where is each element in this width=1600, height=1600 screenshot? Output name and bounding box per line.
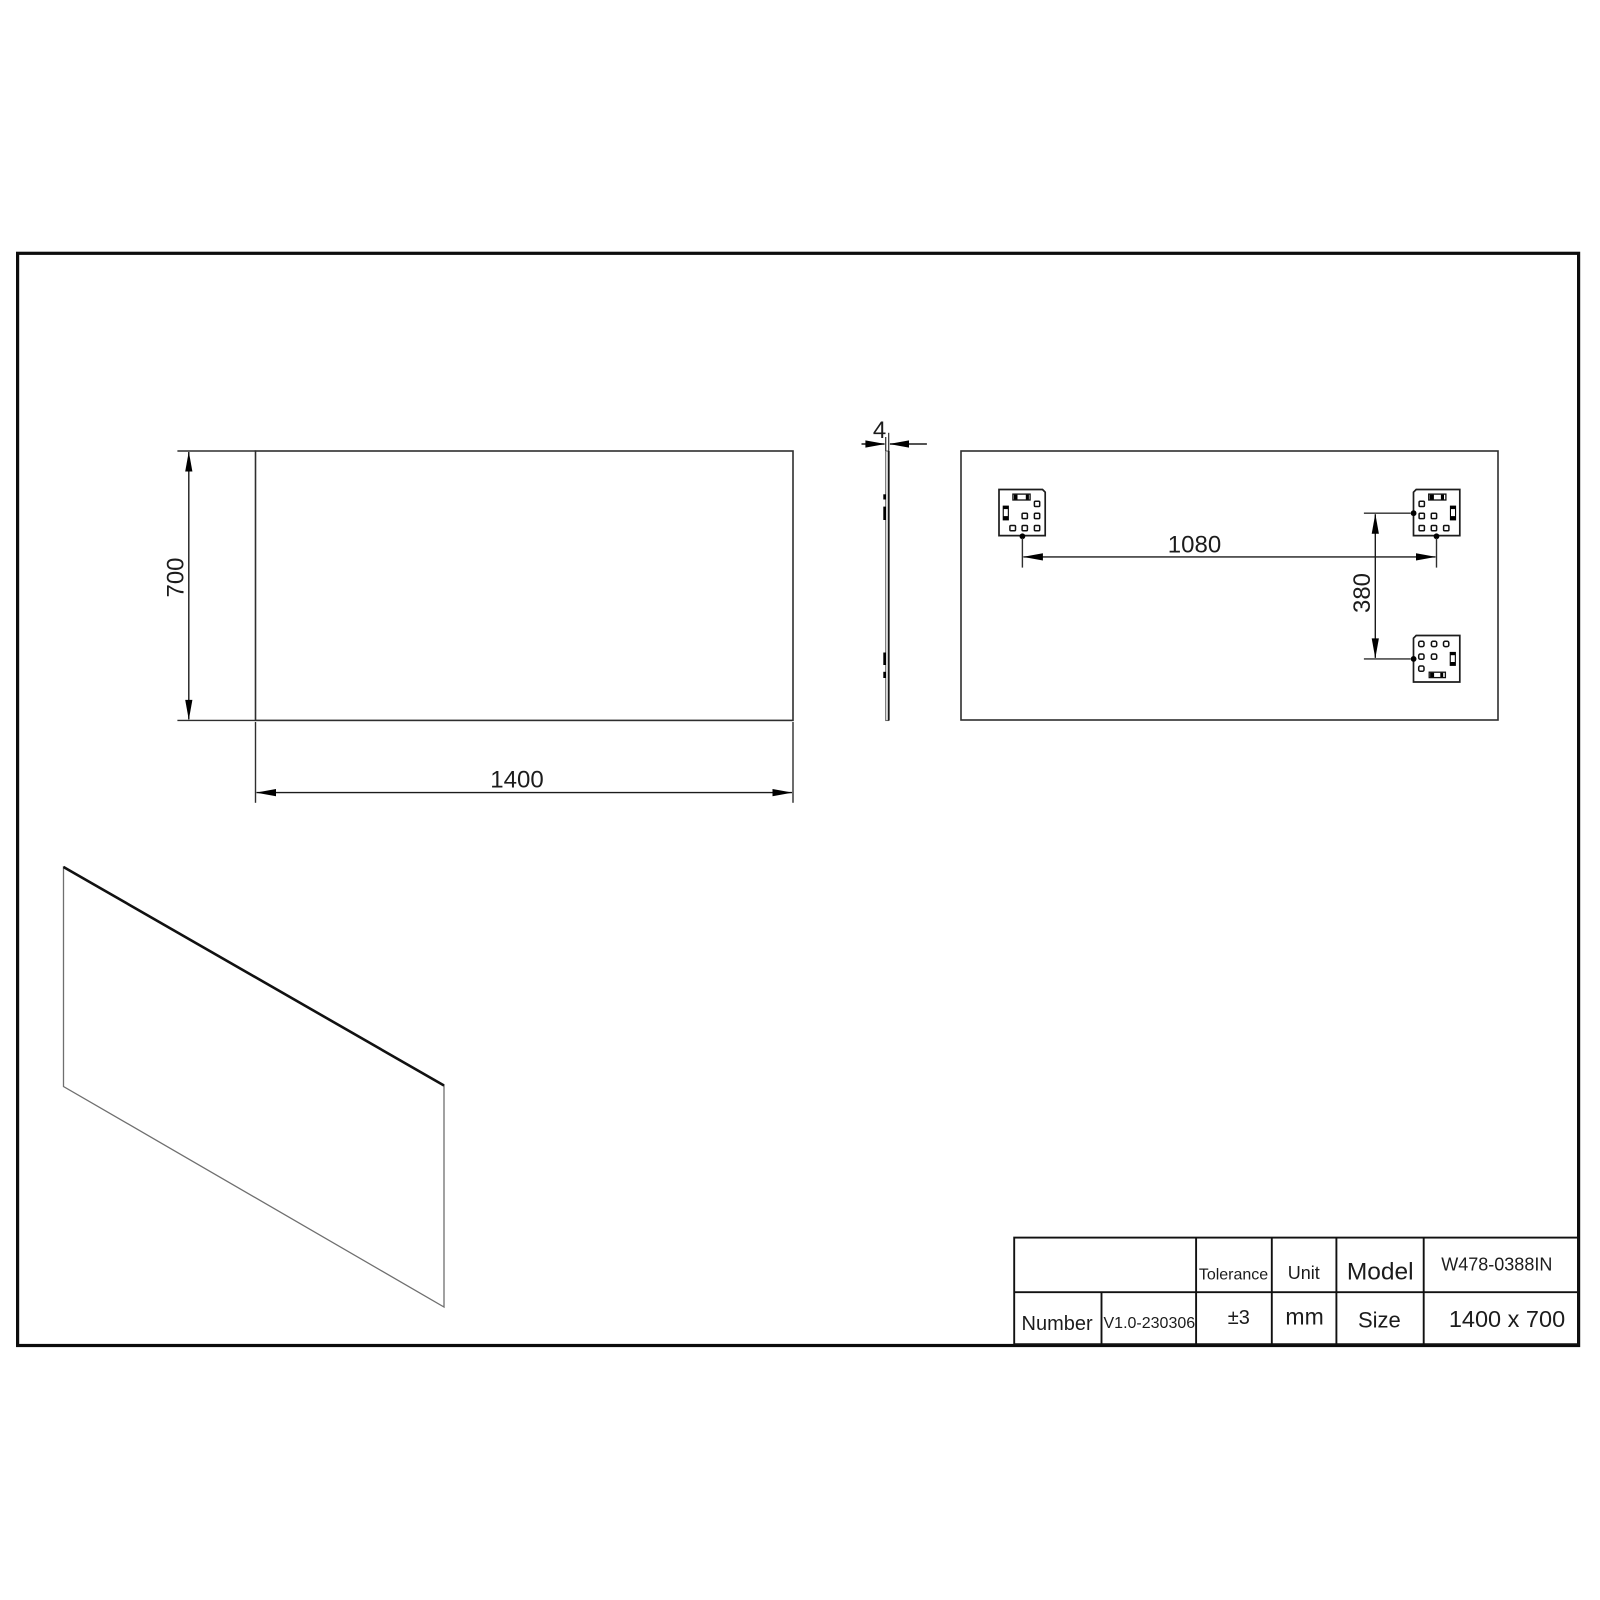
svg-text:Number: Number (1022, 1313, 1093, 1335)
svg-text:mm: mm (1285, 1304, 1323, 1330)
svg-text:±3: ±3 (1228, 1307, 1250, 1329)
svg-text:1400: 1400 (490, 767, 543, 794)
svg-text:Tolerance: Tolerance (1199, 1266, 1268, 1283)
svg-text:700: 700 (163, 557, 190, 597)
svg-text:Unit: Unit (1288, 1263, 1320, 1283)
svg-text:V1.0-230306: V1.0-230306 (1104, 1315, 1196, 1332)
svg-text:380: 380 (1349, 573, 1376, 613)
svg-text:W478-0388IN: W478-0388IN (1441, 1254, 1552, 1274)
svg-text:Model: Model (1347, 1259, 1414, 1286)
svg-text:1080: 1080 (1168, 532, 1221, 559)
svg-text:Size: Size (1358, 1308, 1401, 1333)
svg-text:4: 4 (873, 417, 886, 444)
svg-text:1400 x 700: 1400 x 700 (1449, 1306, 1565, 1332)
